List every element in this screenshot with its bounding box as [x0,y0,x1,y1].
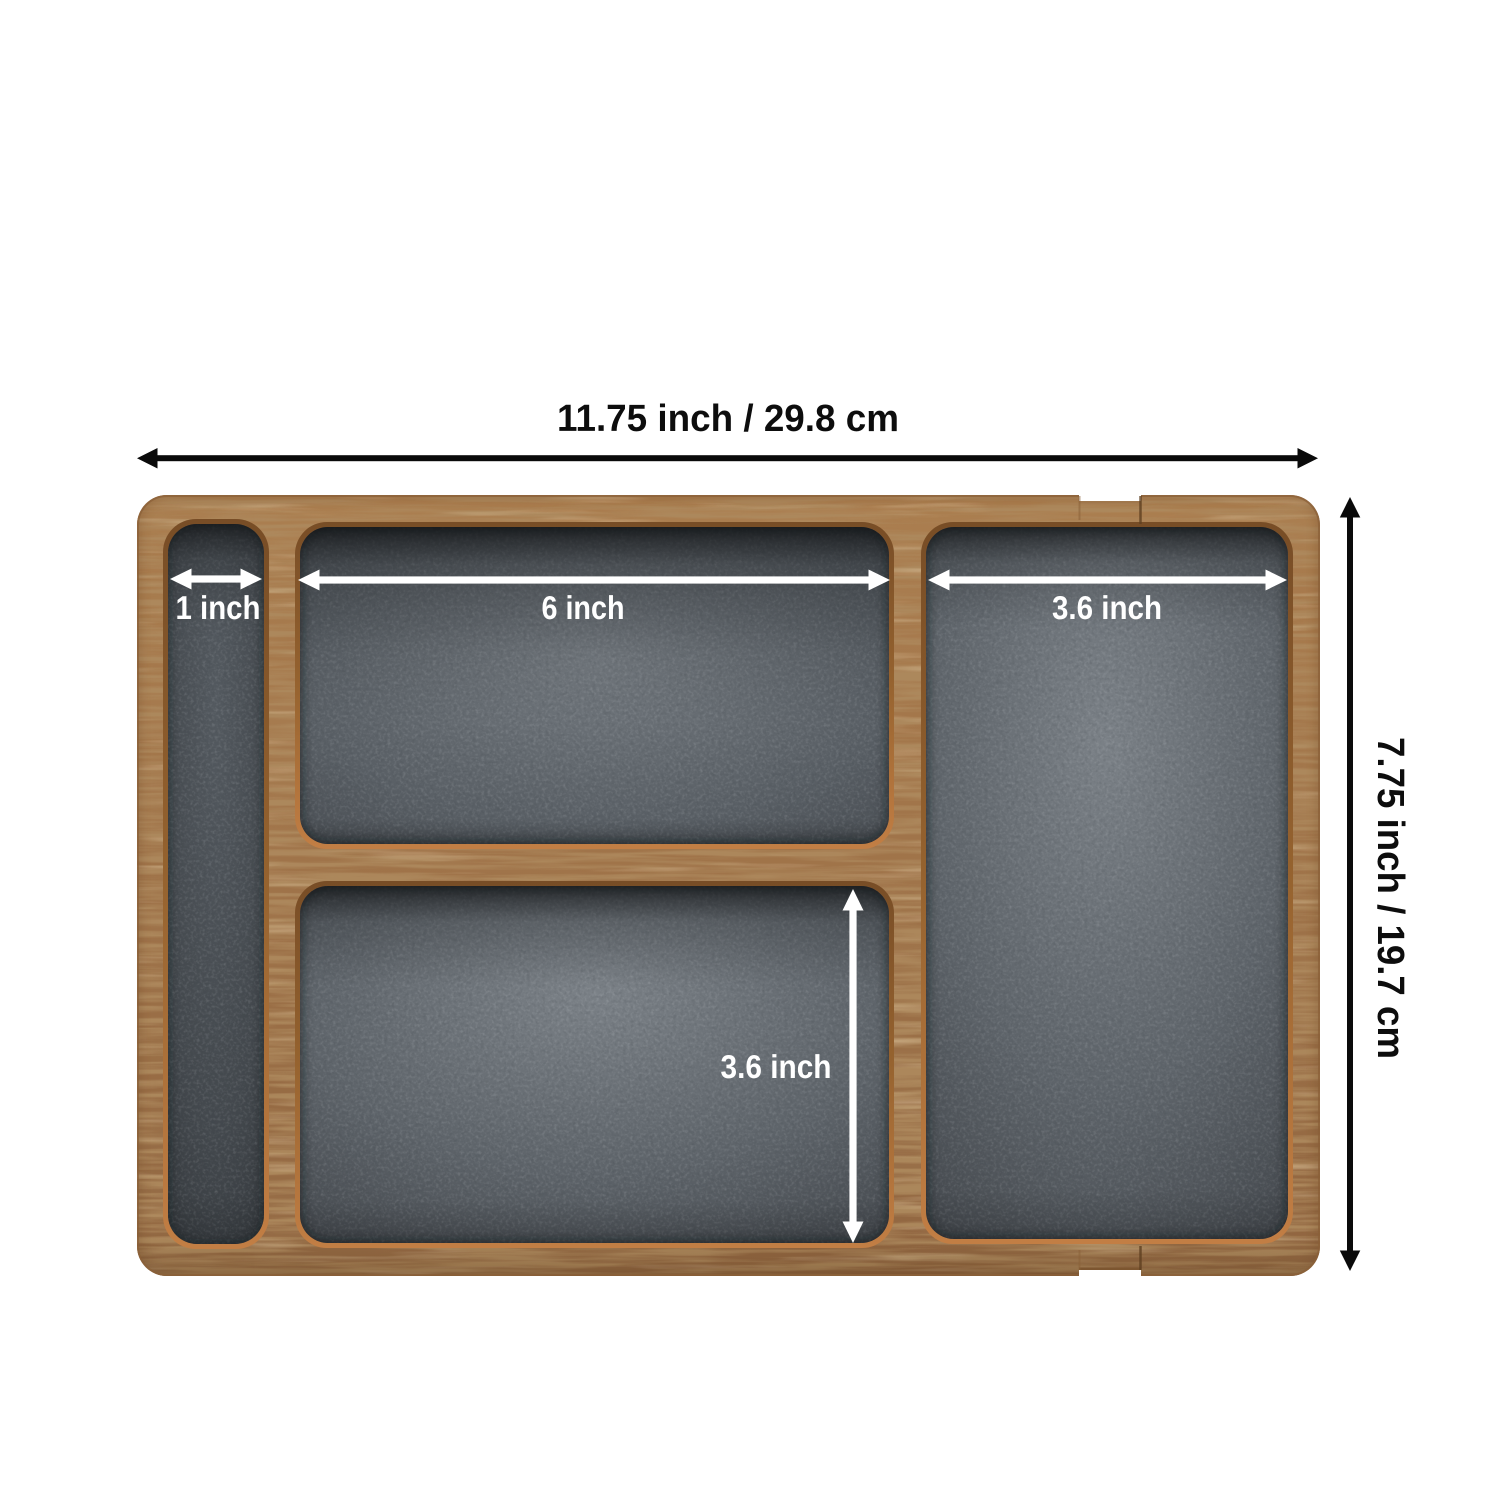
svg-text:7.75 inch / 19.7 cm: 7.75 inch / 19.7 cm [1369,737,1411,1059]
svg-text:11.75 inch / 29.8 cm: 11.75 inch / 29.8 cm [557,398,899,440]
svg-text:1 inch: 1 inch [175,589,260,626]
svg-text:6 inch: 6 inch [541,589,624,626]
svg-text:3.6 inch: 3.6 inch [720,1048,831,1085]
svg-text:3.6 inch: 3.6 inch [1052,589,1162,626]
